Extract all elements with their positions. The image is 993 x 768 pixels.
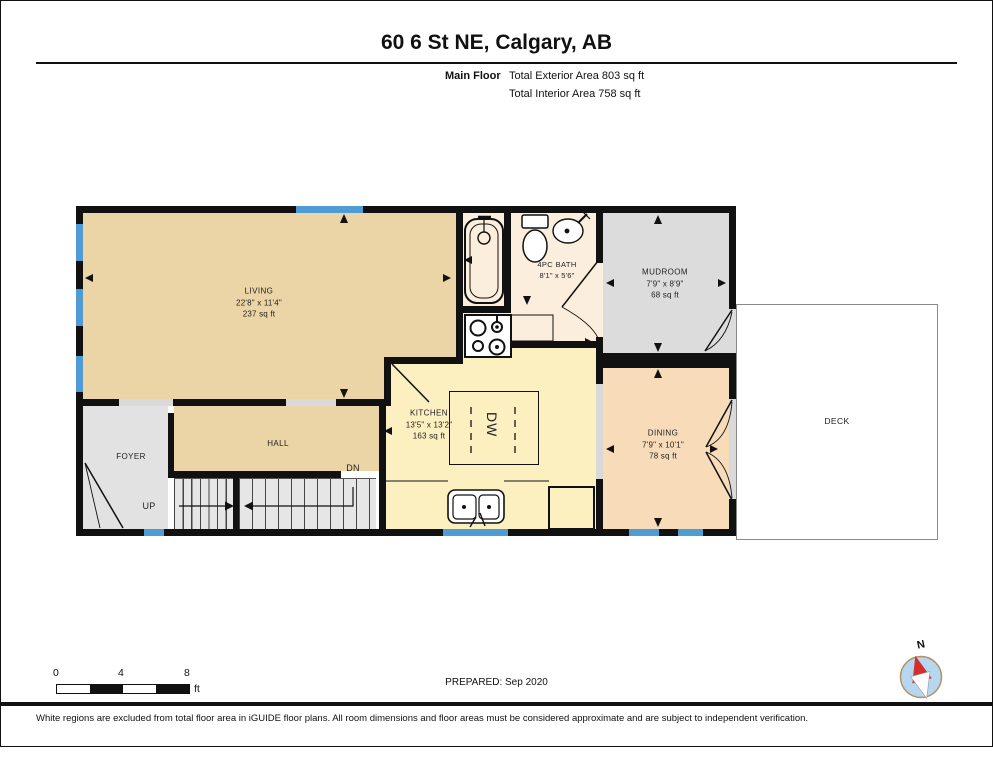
room-name: FOYER	[116, 451, 146, 463]
stove-icon	[465, 315, 511, 357]
floor-label: Main Floor	[445, 70, 501, 82]
room-name: DECK	[824, 415, 849, 427]
counter	[511, 315, 553, 341]
footer-divider	[1, 702, 992, 706]
room-label-hall: HALL	[267, 438, 289, 450]
room-label-mudroom: MUDROOM 7'9" x 8'9" 68 sq ft	[642, 267, 688, 302]
room-area: 78 sq ft	[642, 451, 684, 463]
room-label-living: LIVING 22'8" x 11'4" 237 sq ft	[236, 286, 282, 321]
room-name: 4PC BATH	[537, 260, 576, 271]
room-dims: 13'5" x 13'2"	[406, 419, 452, 431]
room-dims: 22'8" x 11'4"	[236, 297, 282, 309]
room-area: 237 sq ft	[236, 309, 282, 321]
interior-area-text: Total Interior Area 758 sq ft	[509, 88, 640, 100]
room-dims: 7'9" x 10'1"	[642, 439, 684, 451]
room-name: HALL	[267, 438, 289, 450]
prepared-date: PREPARED: Sep 2020	[1, 677, 992, 688]
dimension-arrow-icon	[85, 214, 726, 527]
room-area: 68 sq ft	[642, 290, 688, 302]
title-divider	[36, 62, 957, 64]
room-dims: 8'1" x 5'6"	[537, 271, 576, 282]
stairs-down-label: DN	[346, 463, 360, 473]
room-name: LIVING	[236, 286, 282, 298]
page-title: 60 6 St NE, Calgary, AB	[1, 31, 992, 55]
exterior-area-text: Total Exterior Area 803 sq ft	[509, 70, 644, 82]
room-label-dining: DINING 7'9" x 10'1" 78 sq ft	[642, 428, 684, 463]
room-name: DINING	[642, 428, 684, 440]
room-label-foyer: FOYER	[116, 451, 146, 463]
stair-arrow	[179, 487, 353, 511]
sink-icon	[553, 212, 590, 243]
fixtures-layer: DW	[1, 1, 992, 746]
kitchen-sink-icon	[448, 490, 504, 527]
dishwasher-label: DW	[484, 412, 500, 437]
disclaimer-text: White regions are excluded from total fl…	[36, 713, 808, 724]
fridge-icon	[549, 487, 594, 529]
door-leaf	[85, 261, 732, 528]
room-dims: 7'9" x 8'9"	[642, 278, 688, 290]
room-name: MUDROOM	[642, 267, 688, 279]
toilet-icon	[522, 215, 548, 262]
room-label-kitchen: KITCHEN 13'5" x 13'2" 163 sq ft	[406, 408, 452, 443]
floorplan-sheet: 60 6 St NE, Calgary, AB Main Floor Total…	[0, 0, 993, 747]
room-label-bath: 4PC BATH 8'1" x 5'6"	[537, 260, 576, 282]
room-name: KITCHEN	[406, 408, 452, 420]
room-label-deck: DECK	[824, 415, 849, 427]
room-area: 163 sq ft	[406, 431, 452, 443]
stairs-up-label: UP	[142, 501, 155, 511]
